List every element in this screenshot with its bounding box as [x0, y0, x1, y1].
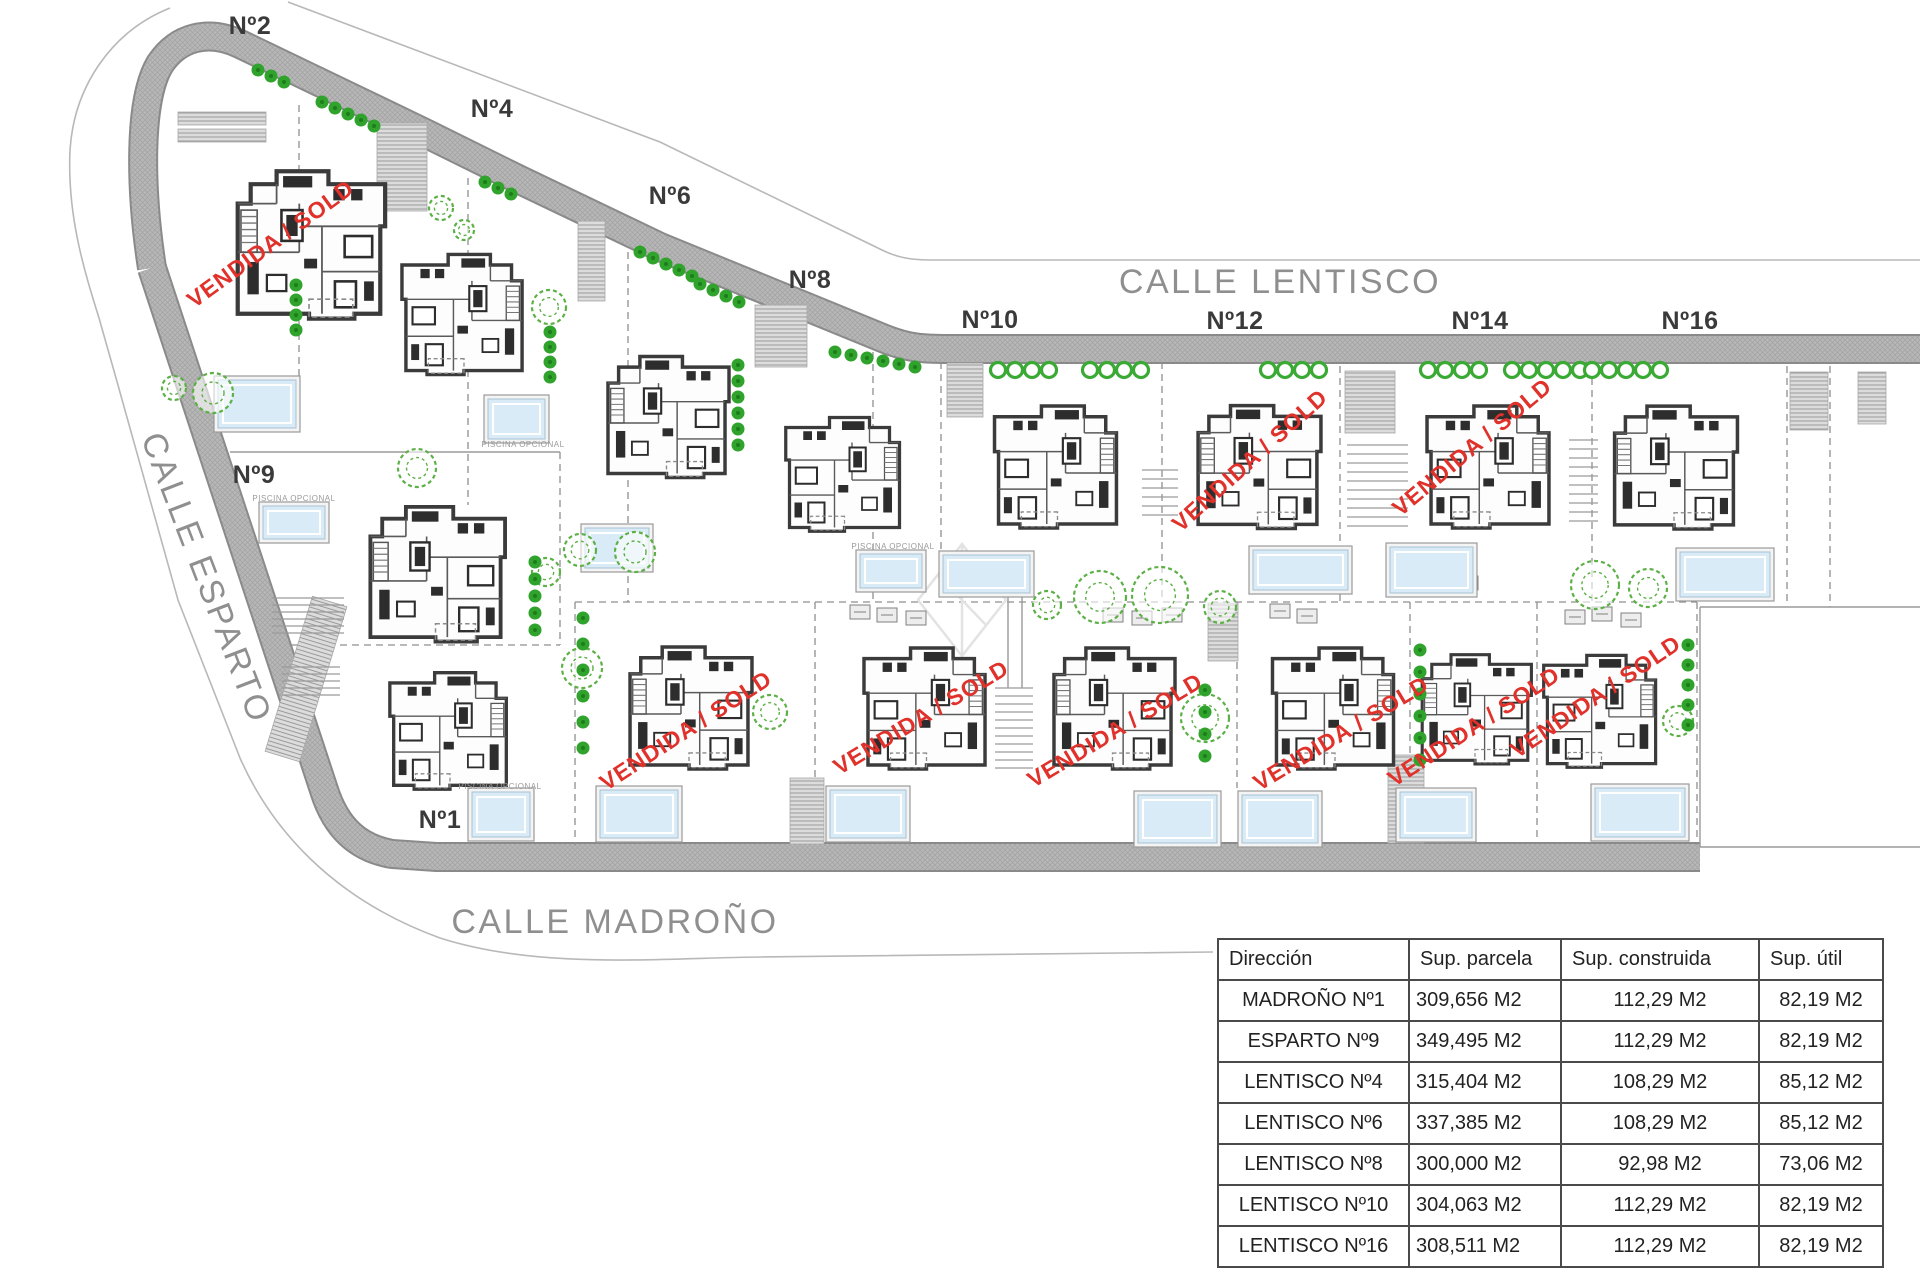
- table-cell: 82,19 M2: [1759, 1021, 1883, 1062]
- bush-center: [664, 262, 668, 266]
- hedge-bush-icon: [1008, 363, 1023, 378]
- bush-center: [736, 443, 740, 447]
- bush-center: [736, 379, 740, 383]
- pool: [472, 792, 530, 837]
- plot-label: Nº8: [789, 266, 832, 294]
- pool: [1595, 788, 1685, 837]
- tree-icon: [398, 449, 436, 487]
- bush-center: [881, 359, 885, 363]
- table-cell: 85,12 M2: [1759, 1103, 1883, 1144]
- table-cell: MADROÑO Nº1: [1218, 980, 1409, 1021]
- table-cell: LENTISCO Nº6: [1218, 1103, 1409, 1144]
- pool-option-label: PISCINA OPCIONAL: [481, 440, 564, 449]
- house-n9: [370, 507, 505, 642]
- hedge-bush-icon: [1117, 363, 1132, 378]
- bush-center: [638, 250, 642, 254]
- bush-center: [737, 300, 741, 304]
- bush-center: [1418, 714, 1422, 718]
- bush-center: [509, 192, 513, 196]
- bush-center: [1686, 683, 1690, 687]
- pool: [1390, 547, 1473, 593]
- bush-center: [1203, 732, 1207, 736]
- table-cell: LENTISCO Nº10: [1218, 1185, 1409, 1226]
- bush-center: [533, 594, 537, 598]
- hedge-bush-icon: [1438, 363, 1453, 378]
- bush-center: [548, 345, 552, 349]
- bush-center: [533, 611, 537, 615]
- hedge-bush-icon: [1472, 363, 1487, 378]
- bush-center: [581, 746, 585, 750]
- table-cell: 108,29 M2: [1561, 1062, 1759, 1103]
- table-cell: 82,19 M2: [1759, 1185, 1883, 1226]
- table-cell: 82,19 M2: [1759, 980, 1883, 1021]
- table-cell: 108,29 M2: [1561, 1103, 1759, 1144]
- driveway: [1790, 372, 1828, 430]
- bush-center: [724, 294, 728, 298]
- bush-center: [372, 124, 376, 128]
- hedge-bush-icon: [1556, 363, 1571, 378]
- table-cell: 92,98 M2: [1561, 1144, 1759, 1185]
- bush-center: [533, 628, 537, 632]
- tree-icon: [1629, 569, 1667, 607]
- table-cell: 73,06 M2: [1759, 1144, 1883, 1185]
- table-header-cell: Dirección: [1218, 939, 1409, 980]
- tree-icon: [1033, 591, 1061, 619]
- plot-label: Nº9: [233, 461, 276, 489]
- boundary-north: [288, 2, 1920, 260]
- plot-label: Nº14: [1452, 307, 1509, 335]
- bush-center: [1203, 754, 1207, 758]
- bush-center: [548, 360, 552, 364]
- surface-data-table: DirecciónSup. parcelaSup. construidaSup.…: [1217, 938, 1884, 1268]
- hedge-bush-icon: [1653, 363, 1668, 378]
- plot-label: Nº4: [471, 95, 514, 123]
- table-cell: 315,404 M2: [1409, 1062, 1561, 1103]
- table-row: ESPARTO Nº9349,495 M2112,29 M282,19 M2: [1218, 1021, 1883, 1062]
- table-row: MADROÑO Nº1309,656 M2112,29 M282,19 M2: [1218, 980, 1883, 1021]
- hedge-bush-icon: [1505, 363, 1520, 378]
- house-n16: [1615, 406, 1738, 529]
- table-header-row: DirecciónSup. parcelaSup. construidaSup.…: [1218, 939, 1883, 980]
- house-n6: [608, 356, 729, 477]
- bush-center: [269, 74, 273, 78]
- house-n8: [786, 418, 900, 532]
- driveway: [790, 778, 824, 844]
- plot-label: Nº10: [962, 306, 1019, 334]
- bush-center: [1686, 723, 1690, 727]
- table-cell: 112,29 M2: [1561, 1021, 1759, 1062]
- bush-center: [581, 694, 585, 698]
- driveway: [578, 221, 605, 301]
- bush-center: [865, 356, 869, 360]
- bush-center: [581, 668, 585, 672]
- bush-center: [897, 362, 901, 366]
- driveway: [178, 112, 266, 125]
- plot-label: Nº12: [1207, 307, 1264, 335]
- bush-center: [533, 577, 537, 581]
- tree-icon: [615, 532, 655, 572]
- bush-center: [651, 256, 655, 260]
- hedge-bush-icon: [1636, 363, 1651, 378]
- hedge-bush-icon: [1083, 363, 1098, 378]
- hedge-bush-icon: [1619, 363, 1634, 378]
- table-header-cell: Sup. construida: [1561, 939, 1759, 980]
- bush-center: [294, 313, 298, 317]
- pool: [1138, 795, 1217, 843]
- bush-center: [677, 268, 681, 272]
- bush-center: [548, 375, 552, 379]
- driveway: [1345, 371, 1395, 433]
- hedge-bush-icon: [991, 363, 1006, 378]
- table-cell: LENTISCO Nº4: [1218, 1062, 1409, 1103]
- bush-center: [736, 427, 740, 431]
- bush-center: [533, 560, 537, 564]
- plot-label: Nº2: [229, 12, 272, 40]
- bush-center: [913, 365, 917, 369]
- plot-label: Nº16: [1662, 307, 1719, 335]
- hedge-bush-icon: [1042, 363, 1057, 378]
- hedge-bush-icon: [1025, 363, 1040, 378]
- table-cell: ESPARTO Nº9: [1218, 1021, 1409, 1062]
- bush-center: [736, 411, 740, 415]
- hedge-bush-icon: [1295, 363, 1310, 378]
- tree-icon: [193, 373, 233, 413]
- hedge-bush-icon: [1261, 363, 1276, 378]
- bush-center: [256, 68, 260, 72]
- bush-center: [548, 330, 552, 334]
- bush-center: [1686, 703, 1690, 707]
- hedge-bush-icon: [1100, 363, 1115, 378]
- table-row: LENTISCO Nº4315,404 M2108,29 M285,12 M2: [1218, 1062, 1883, 1103]
- pool: [1242, 795, 1318, 843]
- table-header-cell: Sup. parcela: [1409, 939, 1561, 980]
- hedge-bush-icon: [1421, 363, 1436, 378]
- pool-option-label: PISCINA OPCIONAL: [851, 542, 934, 551]
- tree-icon: [454, 220, 474, 240]
- bush-center: [1686, 643, 1690, 647]
- bush-center: [359, 118, 363, 122]
- tree-icon: [753, 695, 787, 729]
- table-cell: LENTISCO Nº16: [1218, 1226, 1409, 1267]
- table-cell: 112,29 M2: [1561, 980, 1759, 1021]
- pool: [830, 790, 906, 838]
- table-cell: 309,656 M2: [1409, 980, 1561, 1021]
- table-row: LENTISCO Nº6337,385 M2108,29 M285,12 M2: [1218, 1103, 1883, 1144]
- bush-center: [294, 283, 298, 287]
- hedge-bush-icon: [1134, 363, 1149, 378]
- bush-center: [294, 328, 298, 332]
- bush-center: [711, 288, 715, 292]
- bush-center: [1686, 663, 1690, 667]
- hedge-bush-icon: [1278, 363, 1293, 378]
- tree-icon: [1074, 571, 1126, 623]
- bush-center: [1418, 736, 1422, 740]
- bush-center: [333, 106, 337, 110]
- table-cell: 112,29 M2: [1561, 1226, 1759, 1267]
- bush-center: [320, 100, 324, 104]
- plot-label: Nº1: [419, 806, 462, 834]
- tree-icon: [1571, 561, 1619, 609]
- bush-center: [581, 642, 585, 646]
- hedge-bush-icon: [1522, 363, 1537, 378]
- pool-option-label: PISCINA OPCIONAL: [458, 782, 541, 791]
- driveway: [1858, 372, 1886, 424]
- table-cell: 112,29 M2: [1561, 1185, 1759, 1226]
- hedge-bush-icon: [1312, 363, 1327, 378]
- table-row: LENTISCO Nº10304,063 M2112,29 M282,19 M2: [1218, 1185, 1883, 1226]
- table-row: LENTISCO Nº16308,511 M2112,29 M282,19 M2: [1218, 1226, 1883, 1267]
- bush-center: [736, 395, 740, 399]
- bush-center: [581, 616, 585, 620]
- plot-label: Nº6: [649, 182, 692, 210]
- bush-center: [581, 720, 585, 724]
- bush-center: [1418, 648, 1422, 652]
- street-label-calle-lentisco: CALLE LENTISCO: [1119, 263, 1441, 301]
- street-label-calle-madrono: CALLE MADROÑO: [451, 903, 778, 941]
- driveway: [178, 129, 266, 142]
- tree-icon: [162, 376, 186, 400]
- pool: [600, 790, 678, 838]
- table-cell: 337,385 M2: [1409, 1103, 1561, 1144]
- table-cell: 82,19 M2: [1759, 1226, 1883, 1267]
- table-cell: 300,000 M2: [1409, 1144, 1561, 1185]
- table-cell: 349,495 M2: [1409, 1021, 1561, 1062]
- bush-center: [496, 186, 500, 190]
- table-header-cell: Sup. útil: [1759, 939, 1883, 980]
- driveway: [947, 363, 983, 417]
- site-plan-page: PISCINA OPCIONALPISCINA OPCIONALPISCINA …: [0, 0, 1920, 1280]
- bush-center: [833, 350, 837, 354]
- house-n1: [390, 673, 506, 789]
- tree-icon: [532, 290, 566, 324]
- table-row: LENTISCO Nº8300,000 M292,98 M273,06 M2: [1218, 1144, 1883, 1185]
- bush-center: [849, 353, 853, 357]
- bush-center: [483, 180, 487, 184]
- table-cell: LENTISCO Nº8: [1218, 1144, 1409, 1185]
- bush-center: [294, 298, 298, 302]
- bush-center: [1203, 710, 1207, 714]
- table-cell: 308,511 M2: [1409, 1226, 1561, 1267]
- hedge-bush-icon: [1602, 363, 1617, 378]
- hedge-bush-icon: [1585, 363, 1600, 378]
- hedge-bush-icon: [1455, 363, 1470, 378]
- bush-center: [698, 282, 702, 286]
- pool: [1680, 552, 1770, 597]
- house-n4: [402, 254, 522, 374]
- table-cell: 85,12 M2: [1759, 1062, 1883, 1103]
- pool-option-label: PISCINA OPCIONAL: [252, 494, 335, 503]
- table-cell: 304,063 M2: [1409, 1185, 1561, 1226]
- driveway: [755, 305, 807, 367]
- surface-table: DirecciónSup. parcelaSup. construidaSup.…: [1217, 938, 1884, 1268]
- tree-icon: [1132, 567, 1188, 623]
- bush-center: [346, 112, 350, 116]
- pool: [1400, 792, 1472, 838]
- tree-icon: [1204, 591, 1236, 623]
- tree-icon: [564, 534, 596, 566]
- bush-center: [282, 80, 286, 84]
- bush-center: [736, 363, 740, 367]
- house-n10: [995, 406, 1117, 528]
- tree-icon: [429, 196, 453, 220]
- bush-center: [690, 274, 694, 278]
